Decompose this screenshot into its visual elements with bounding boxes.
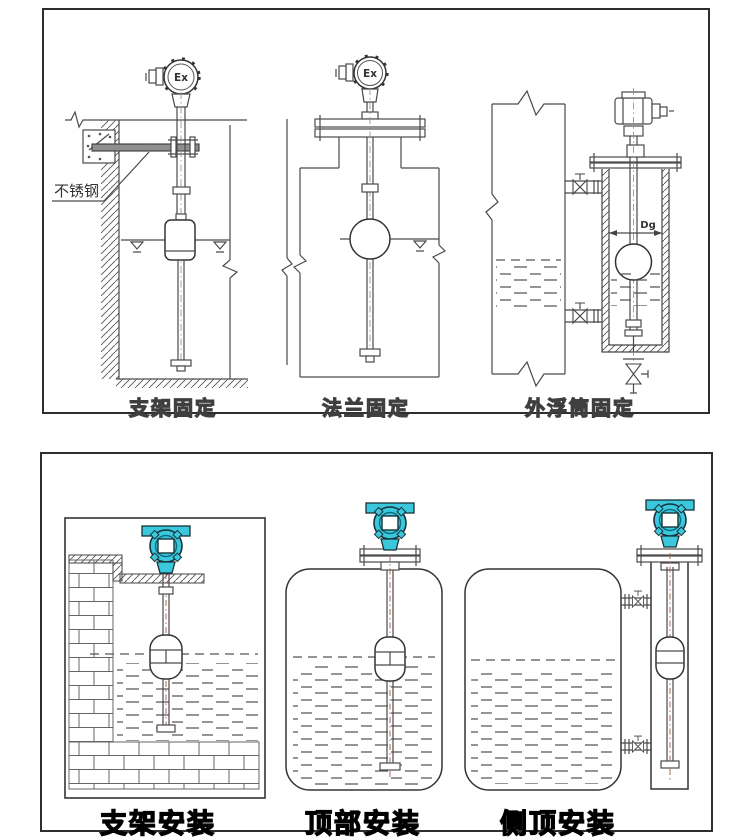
transmitter-head-ex: Ex xyxy=(336,56,388,91)
outer-wall-break xyxy=(282,119,292,365)
stem-end-cap xyxy=(380,763,400,770)
brick-floor xyxy=(69,742,259,789)
bracket-fixing-drawing: Ex 不锈钢 xyxy=(52,30,272,382)
transmitter-head-ex: Ex xyxy=(146,59,200,96)
caption-side-top-installation: 侧顶安装 xyxy=(500,802,616,840)
upper-valve-piping xyxy=(621,591,651,609)
fixing-methods-panel: Ex 不锈钢 xyxy=(42,8,710,414)
upper-valve-piping xyxy=(565,174,602,194)
top-installation-drawing xyxy=(283,495,448,795)
brick-wall xyxy=(69,560,113,742)
cable-connector-icon xyxy=(346,64,353,81)
stem-end-cap xyxy=(171,360,191,366)
ex-marking: Ex xyxy=(174,72,188,84)
lower-valve-piping xyxy=(565,303,602,323)
flange-fixing-drawing: Ex xyxy=(282,30,494,382)
side-top-installation-drawing xyxy=(463,495,708,795)
valve-icon xyxy=(573,174,587,194)
floor-hatch xyxy=(116,379,248,388)
chamber-flange xyxy=(590,145,681,172)
tank-wall-right xyxy=(433,168,445,377)
process-tank xyxy=(486,91,565,386)
transmitter-head-icon xyxy=(366,503,414,550)
level-symbol xyxy=(414,241,426,251)
liquid xyxy=(471,668,615,784)
liquid xyxy=(117,663,258,741)
stem-end-cap xyxy=(360,349,380,356)
tank-wall-left xyxy=(294,168,306,377)
stem-collar xyxy=(626,320,641,327)
dg-label: Dg xyxy=(640,220,655,231)
cable-connector-icon xyxy=(156,68,163,85)
wall-bracket xyxy=(83,130,199,163)
lower-valve-piping xyxy=(621,736,651,754)
cable-connector-icon xyxy=(652,104,660,118)
caption-flange-fixing: 法兰固定 xyxy=(322,392,410,421)
caption-top-installation: 顶部安装 xyxy=(305,802,421,840)
float-ball xyxy=(656,637,684,679)
wall-shelf xyxy=(69,555,122,563)
caption-bracket-fixing: 支架固定 xyxy=(129,392,217,421)
float-ball xyxy=(350,219,390,259)
diagram-page: Ex 不锈钢 xyxy=(0,0,750,840)
mounting-platform xyxy=(120,574,204,583)
stem-end-cap xyxy=(661,761,679,768)
caption-external-chamber-fixing: 外浮筒固定 xyxy=(525,392,635,421)
transmitter-head-icon xyxy=(646,500,694,547)
tank-wall-break xyxy=(223,125,237,379)
stem-collar xyxy=(173,187,190,194)
external-chamber-fixing-drawing: Dg xyxy=(482,30,712,390)
transmitter-head xyxy=(615,92,674,145)
liquid xyxy=(293,665,435,785)
ceiling-line xyxy=(65,112,247,127)
valve-icon xyxy=(573,303,587,323)
chamber-liquid xyxy=(611,270,660,306)
liquid xyxy=(496,266,561,312)
stainless-steel-label: 不锈钢 xyxy=(54,182,99,200)
stem-end-cap xyxy=(157,725,175,732)
ex-marking: Ex xyxy=(363,68,377,80)
installation-methods-panel: 支架安装 顶部安装 侧顶安装 xyxy=(40,452,713,832)
float-ball xyxy=(165,220,195,260)
stem-collar xyxy=(159,587,173,594)
stem-end-cap xyxy=(625,330,642,336)
caption-bracket-installation: 支架安装 xyxy=(100,802,216,840)
bracket-installation-drawing xyxy=(64,517,266,799)
drain-valve xyxy=(623,359,648,393)
stem-collar xyxy=(362,184,378,192)
